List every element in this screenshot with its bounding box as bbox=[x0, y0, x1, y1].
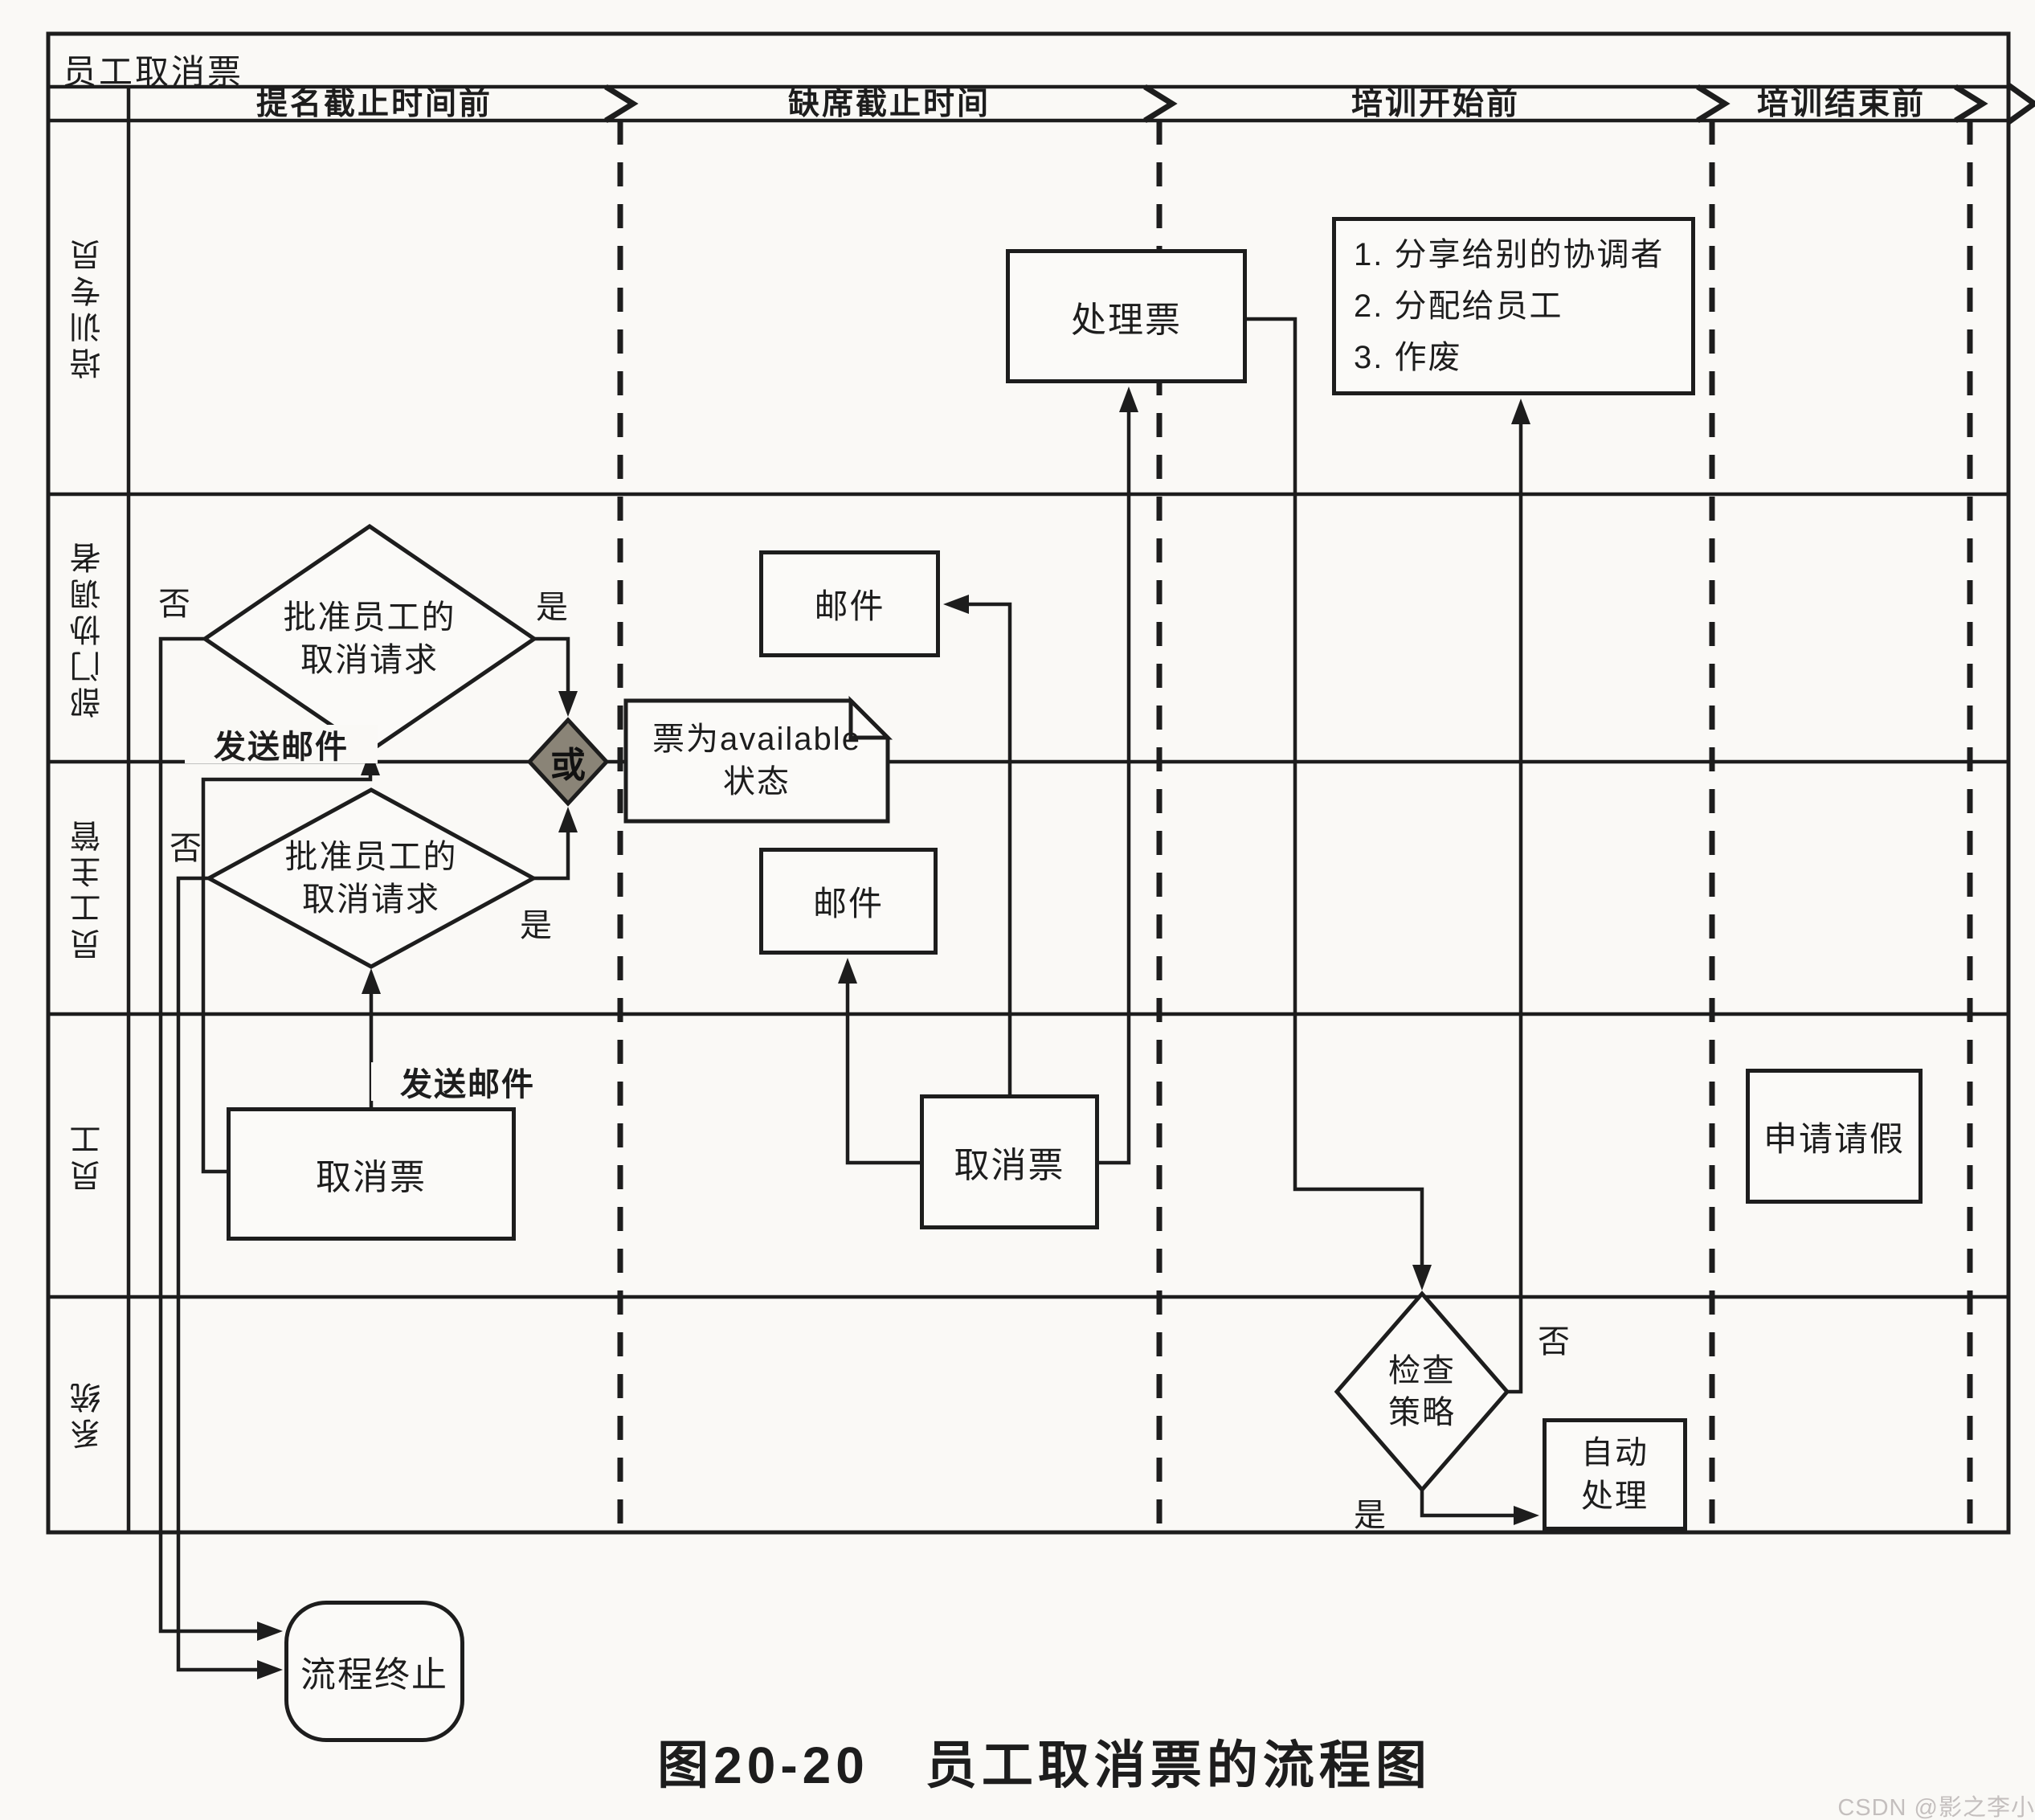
ticket-option-item: 3. 作废 bbox=[1354, 332, 1461, 383]
handle-ticket-box: 处理票 bbox=[1006, 249, 1247, 383]
edge-label-send-mail-coordinator: 发送邮件 bbox=[185, 725, 378, 763]
cancel-ticket-box-late: 取消票 bbox=[920, 1094, 1099, 1229]
flowchart-canvas: 员工取消票 提名截止时间前 缺席截止时间 培训开始前 培训结束前 培训专员 部门… bbox=[0, 0, 2035, 1820]
mail-box-coordinator: 邮件 bbox=[759, 550, 940, 657]
coordinator-approve-text: 批准员工的 取消请求 bbox=[209, 595, 530, 683]
figure-caption: 图20-20 员工取消票的流程图 bbox=[455, 1724, 1634, 1798]
check-policy-text: 检查 策略 bbox=[1342, 1350, 1502, 1434]
watermark: CSDN @影之李小白 bbox=[1824, 1789, 2035, 1820]
swimlane-label-employee: 员工 bbox=[50, 1035, 127, 1276]
edge-label-no-supervisor: 否 bbox=[138, 826, 235, 865]
phase-header-4: 培训结束前 bbox=[1657, 87, 2026, 121]
phase-header-2: 缺席截止时间 bbox=[705, 87, 1074, 121]
apply-leave-box: 申请请假 bbox=[1746, 1069, 1923, 1204]
swimlane-label-supervisor: 员工主管 bbox=[50, 767, 127, 1008]
ticket-available-note-text: 票为available 状态 bbox=[634, 718, 880, 804]
phase-header-1: 提名截止时间前 bbox=[190, 87, 559, 121]
ticket-options-box: 1. 分享给别的协调者 2. 分配给员工 3. 作废 bbox=[1332, 217, 1695, 395]
auto-handle-box: 自动 处理 bbox=[1543, 1418, 1687, 1531]
swimlane-label-system: 系统 bbox=[50, 1294, 127, 1532]
mail-box-supervisor: 邮件 bbox=[759, 848, 938, 955]
edge-label-yes-coordinator: 是 bbox=[505, 585, 601, 624]
swimlane-label-dept-coordinator: 部门协调者 bbox=[50, 507, 127, 748]
or-gateway-text: 或 bbox=[548, 741, 588, 783]
supervisor-approve-text: 批准员工的 取消请求 bbox=[210, 834, 532, 922]
edge-label-yes-policy: 是 bbox=[1322, 1493, 1419, 1532]
edge-label-send-mail-supervisor: 发送邮件 bbox=[371, 1062, 564, 1101]
ticket-option-item: 1. 分享给别的协调者 bbox=[1354, 229, 1664, 280]
ticket-option-item: 2. 分配给员工 bbox=[1354, 280, 1563, 332]
swimlane-label-training-specialist: 培训专员 bbox=[50, 186, 127, 427]
edge-label-no-coordinator: 否 bbox=[127, 582, 223, 620]
edge-label-no-policy: 否 bbox=[1506, 1319, 1603, 1358]
flow-connectors bbox=[161, 319, 1521, 1670]
cancel-ticket-box-early: 取消票 bbox=[227, 1107, 516, 1241]
edge-label-yes-supervisor: 是 bbox=[488, 903, 585, 942]
phase-header-3: 培训开始前 bbox=[1251, 87, 1620, 121]
process-end-terminator: 流程终止 bbox=[284, 1601, 464, 1742]
